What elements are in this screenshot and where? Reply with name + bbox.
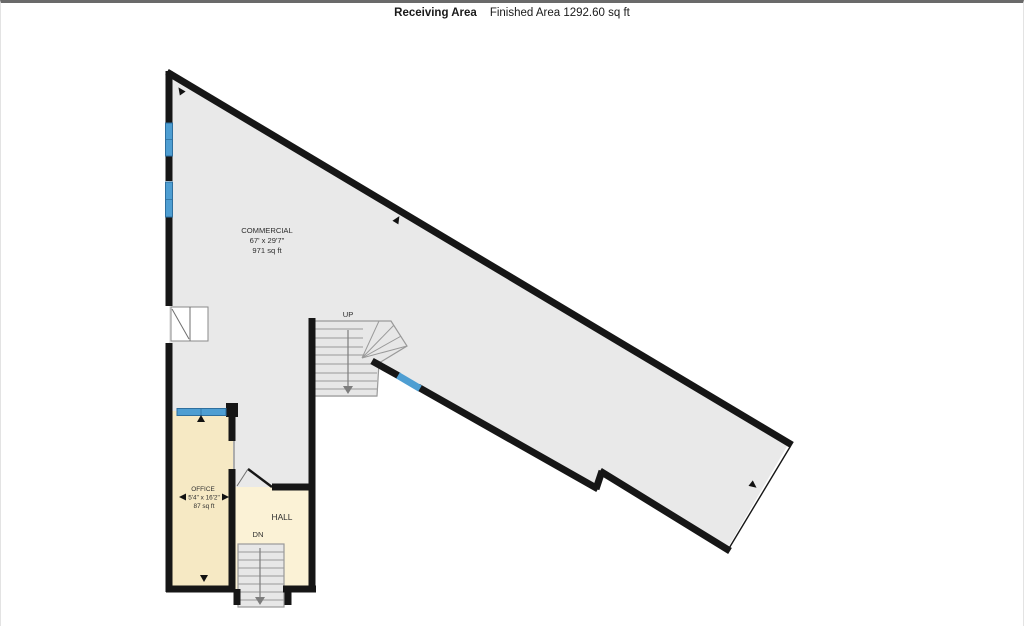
staircase-down xyxy=(238,544,284,607)
commercial-dimensions: 67' x 29'7" xyxy=(250,236,285,245)
floor-plan-page: Receiving Area Finished Area 1292.60 sq … xyxy=(0,0,1024,626)
floor-plan-drawing: COMMERCIAL 67' x 29'7" 971 sq ft OFFICE … xyxy=(1,3,1024,626)
stairs-up-label: UP xyxy=(343,310,354,319)
commercial-label: COMMERCIAL xyxy=(241,226,292,235)
left-wall-door xyxy=(171,307,208,341)
window-office-top xyxy=(177,409,226,416)
commercial-area: 971 sq ft xyxy=(252,246,282,255)
hall-label: HALL xyxy=(272,512,293,522)
office-label: OFFICE xyxy=(191,486,214,493)
office-dimensions: 5'4" x 16'2" xyxy=(188,495,220,502)
office-area: 87 sq ft xyxy=(194,503,215,510)
stairs-down-label: DN xyxy=(253,530,264,539)
